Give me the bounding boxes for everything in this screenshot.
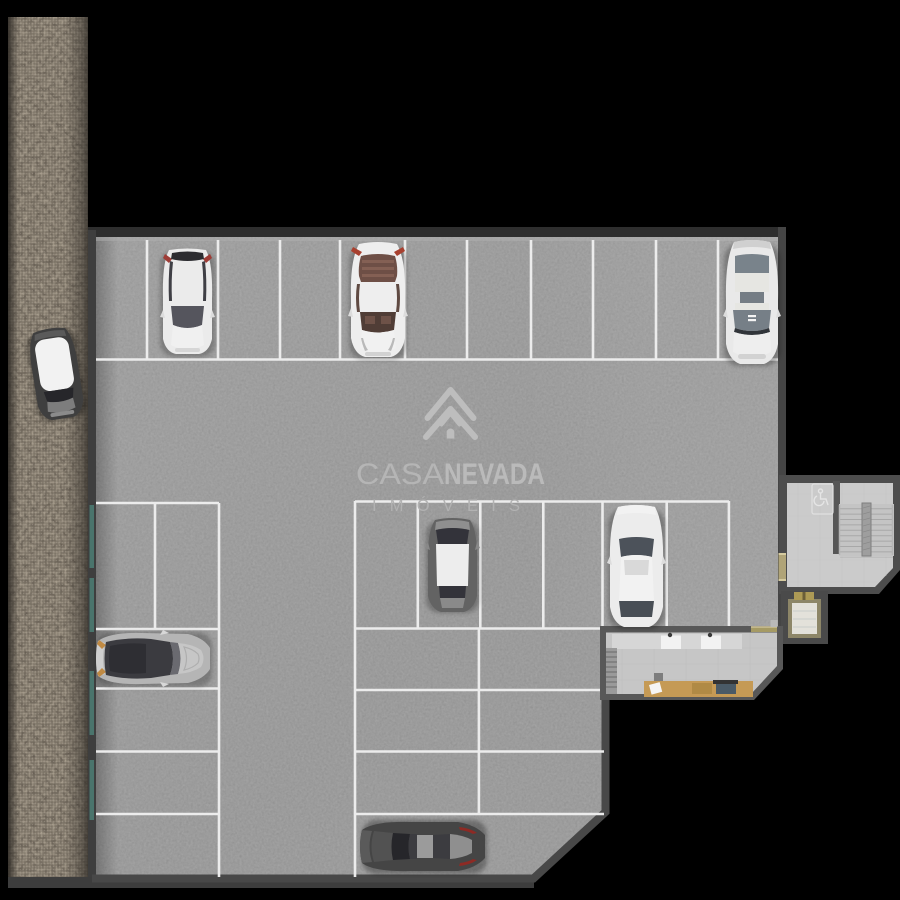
- svg-text:CASA: CASA: [356, 458, 444, 491]
- svg-text:NEVADA: NEVADA: [444, 458, 545, 491]
- svg-text:IMÓVEIS: IMÓVEIS: [372, 496, 532, 515]
